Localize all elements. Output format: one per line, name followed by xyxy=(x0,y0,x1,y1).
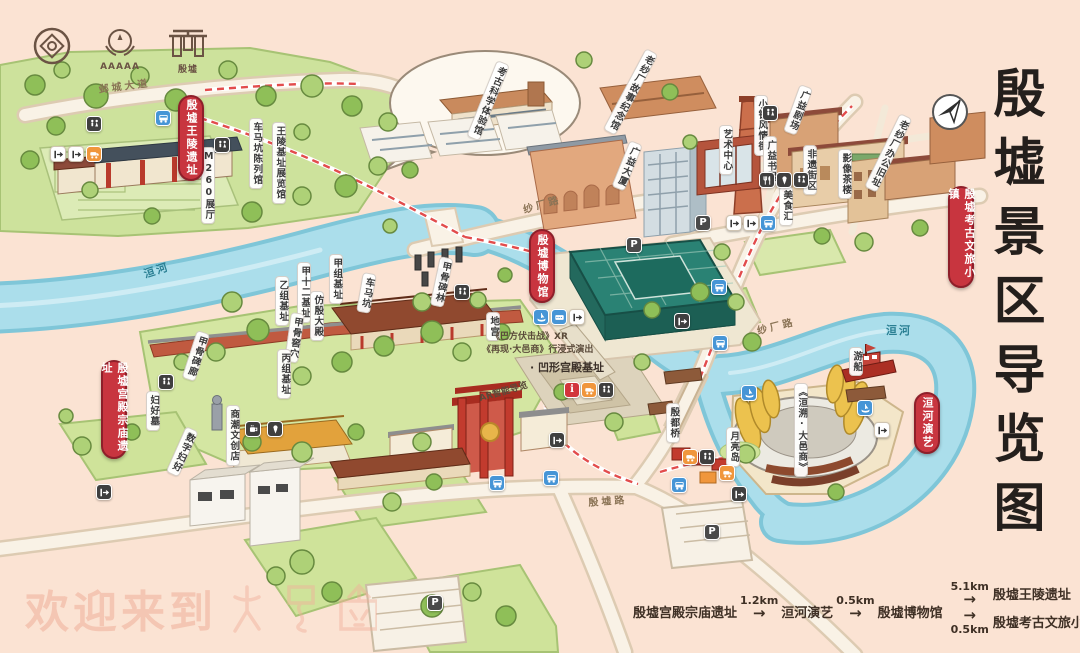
tree-icon xyxy=(383,219,397,233)
tree-icon xyxy=(82,182,98,198)
tree-icon xyxy=(828,484,844,500)
parking-icon: P xyxy=(626,237,642,253)
tree-icon xyxy=(728,294,744,310)
boat-icon xyxy=(533,309,549,325)
route-branch-town: → 0.5km 殷墟考古文旅小镇 xyxy=(947,608,1080,635)
tree-icon xyxy=(348,424,364,440)
parking-icon: P xyxy=(695,215,711,231)
tree-icon xyxy=(912,220,928,236)
map-label: 《巴方伏击战》XR xyxy=(489,331,570,345)
tree-icon xyxy=(21,151,39,169)
map-label: 洹河 xyxy=(884,323,914,339)
route-distance: 0.5km xyxy=(951,623,989,636)
tree-icon xyxy=(207,343,225,361)
map-label: 游船 xyxy=(849,347,863,376)
gate-icon xyxy=(50,146,66,162)
shuttle-icon xyxy=(581,382,597,398)
bus-icon xyxy=(711,279,727,295)
map-label: 《再现·大邑商》行浸式演出 xyxy=(480,344,595,358)
tree-icon xyxy=(496,606,516,626)
gate-icon xyxy=(731,486,747,502)
route-arrow: 0.5km → xyxy=(836,594,874,621)
gate-icon xyxy=(68,146,84,162)
wc-icon xyxy=(762,105,778,121)
tree-icon xyxy=(294,124,310,140)
gate-icon xyxy=(549,432,565,448)
tree-icon xyxy=(576,52,592,68)
tree-icon xyxy=(644,302,660,318)
route-stop-museum: 殷墟博物馆 xyxy=(878,602,943,621)
tree-icon xyxy=(683,135,697,149)
wc-icon xyxy=(699,449,715,465)
map-label: 车马坑陈列馆 xyxy=(249,118,263,189)
oracle-glyphs xyxy=(227,581,377,635)
ticket-icon xyxy=(551,309,567,325)
compass-icon xyxy=(928,88,972,144)
tree-icon xyxy=(242,202,262,222)
gate-icon xyxy=(743,215,759,231)
tree-icon xyxy=(47,117,65,135)
map-label: 商潮文创店 xyxy=(226,405,240,466)
tree-icon xyxy=(498,268,512,282)
page-title: 殷墟景区导览图 xyxy=(988,66,1040,549)
map-label: 殷都桥 xyxy=(666,403,680,443)
tree-icon xyxy=(426,474,442,490)
shuttle-icon xyxy=(86,146,102,162)
tree-icon xyxy=(293,367,311,385)
gate-icon xyxy=(874,422,890,438)
tree-icon xyxy=(222,292,242,312)
map-label: 艺术中心 xyxy=(719,125,733,175)
map-illustration xyxy=(0,0,1080,653)
bus-icon xyxy=(489,475,505,491)
food-icon xyxy=(759,172,775,188)
gate-icon xyxy=(674,313,690,329)
tree-icon xyxy=(219,61,237,79)
bus-icon xyxy=(760,215,776,231)
bus-icon xyxy=(155,110,171,126)
bus-icon xyxy=(543,470,559,486)
map-label: 殷墟路 xyxy=(586,494,630,512)
aaaaa-logo: AAAAA xyxy=(94,26,146,72)
map-label: 甲组基址 xyxy=(329,254,343,304)
map-label: 丙组基址 xyxy=(277,349,291,399)
boat-icon xyxy=(741,385,757,401)
wc-icon xyxy=(454,284,470,300)
tree-icon xyxy=(342,96,362,116)
route-summary: 殷墟宫殿宗庙遗址 1.2km → 洹河演艺 0.5km → 殷墟博物馆 5.1k… xyxy=(633,580,1079,635)
parking-icon: P xyxy=(427,595,443,611)
yinxu-logo-label: 殷墟 xyxy=(178,62,198,75)
tree-icon xyxy=(421,321,443,343)
coffee-icon xyxy=(245,421,261,437)
route-branch-tombs: 5.1km → 殷墟王陵遗址 xyxy=(947,580,1080,607)
shuttle-icon xyxy=(719,465,735,481)
tree-icon xyxy=(413,433,431,451)
tree-icon xyxy=(605,413,623,431)
tree-icon xyxy=(247,319,269,341)
tree-icon xyxy=(634,354,650,370)
tree-icon xyxy=(662,84,678,100)
bus-icon xyxy=(712,335,728,351)
shuttle-icon xyxy=(682,449,698,465)
tree-icon xyxy=(293,187,311,205)
tree-icon xyxy=(383,493,401,511)
yinxu-scenic-map: AAAAA 殷墟 殷墟景区导览图 殷墟王陵遗址殷墟博物馆殷墟考古文旅小镇殷墟宫殿… xyxy=(0,0,1080,653)
welcome-watermark: 欢迎来到 xyxy=(25,576,377,640)
aaaaa-label: AAAAA xyxy=(100,62,140,72)
tree-icon xyxy=(301,75,323,97)
yinxu-gate-logo: 殷墟 xyxy=(162,26,214,75)
badge-museum: 殷墟博物馆 xyxy=(529,229,555,303)
tree-icon xyxy=(463,583,481,601)
tree-icon xyxy=(374,336,394,356)
wc-icon xyxy=(158,374,174,390)
map-label: 月亮岛 xyxy=(726,427,740,467)
wc-icon xyxy=(214,137,230,153)
yinxu-gate-icon xyxy=(165,26,211,60)
map-label: 妇好墓 xyxy=(146,391,160,431)
gate-icon xyxy=(96,484,112,500)
world-heritage-icon xyxy=(32,26,72,66)
map-label: · 凹形宫殿基址 xyxy=(528,360,606,376)
boat-icon xyxy=(857,400,873,416)
wc-icon xyxy=(598,382,614,398)
tree-icon xyxy=(855,233,873,251)
tree-icon xyxy=(814,228,830,244)
tree-icon xyxy=(332,352,352,372)
tree-icon xyxy=(25,75,45,95)
tree-icon xyxy=(691,283,709,301)
gate-icon xyxy=(569,309,585,325)
dessert-icon xyxy=(776,172,792,188)
tree-icon xyxy=(335,175,357,197)
tree-icon xyxy=(290,550,314,574)
parking-icon: P xyxy=(704,524,720,540)
wc-icon xyxy=(793,172,809,188)
tree-icon xyxy=(144,208,160,224)
tree-icon xyxy=(369,157,387,175)
map-label: 美食汇 xyxy=(779,186,793,226)
map-label: 仿殷大殿 xyxy=(310,291,324,341)
tree-icon xyxy=(59,409,73,423)
bus-icon xyxy=(671,477,687,493)
tree-icon xyxy=(379,113,397,131)
tree-icon xyxy=(292,442,312,462)
wc-icon xyxy=(86,116,102,132)
map-label: 影像茶楼 xyxy=(838,149,852,199)
tree-icon xyxy=(470,292,486,308)
tree-icon xyxy=(413,293,431,311)
tree-icon xyxy=(256,86,276,106)
route-main: 殷墟宫殿宗庙遗址 1.2km → 洹河演艺 0.5km → 殷墟博物馆 xyxy=(633,594,943,621)
tree-icon xyxy=(402,162,418,178)
route-arrow: 1.2km → xyxy=(740,594,778,621)
badge-show: 洹河演艺 xyxy=(914,392,940,454)
map-label: 乙组基址 xyxy=(275,276,289,326)
tree-icon xyxy=(73,437,91,455)
tree-icon xyxy=(714,244,730,260)
badge-palace: 殷墟宫殿宗庙遗址 xyxy=(101,360,127,459)
info-icon: i xyxy=(564,382,580,398)
map-label: 王陵基址展览馆 xyxy=(272,122,286,204)
badge-town: 殷墟考古文旅小镇 xyxy=(948,186,974,288)
tree-icon xyxy=(453,343,471,361)
map-label: 《洹溯·大邑商》 xyxy=(794,383,808,477)
route-stop-palace: 殷墟宫殿宗庙遗址 xyxy=(633,602,737,621)
badge-wangling: 殷墟王陵遗址 xyxy=(178,95,204,181)
dessert-icon xyxy=(267,421,283,437)
route-branches: 5.1km → 殷墟王陵遗址 → 0.5km 殷墟考古文旅小镇 xyxy=(947,580,1080,635)
gate-icon xyxy=(726,215,742,231)
route-stop-show: 洹河演艺 xyxy=(781,602,833,621)
header-logos: AAAAA 殷墟 xyxy=(26,26,214,75)
world-heritage-logo xyxy=(26,26,78,66)
aaaaa-emblem-icon xyxy=(100,26,140,60)
welcome-text: 欢迎来到 xyxy=(25,576,217,640)
